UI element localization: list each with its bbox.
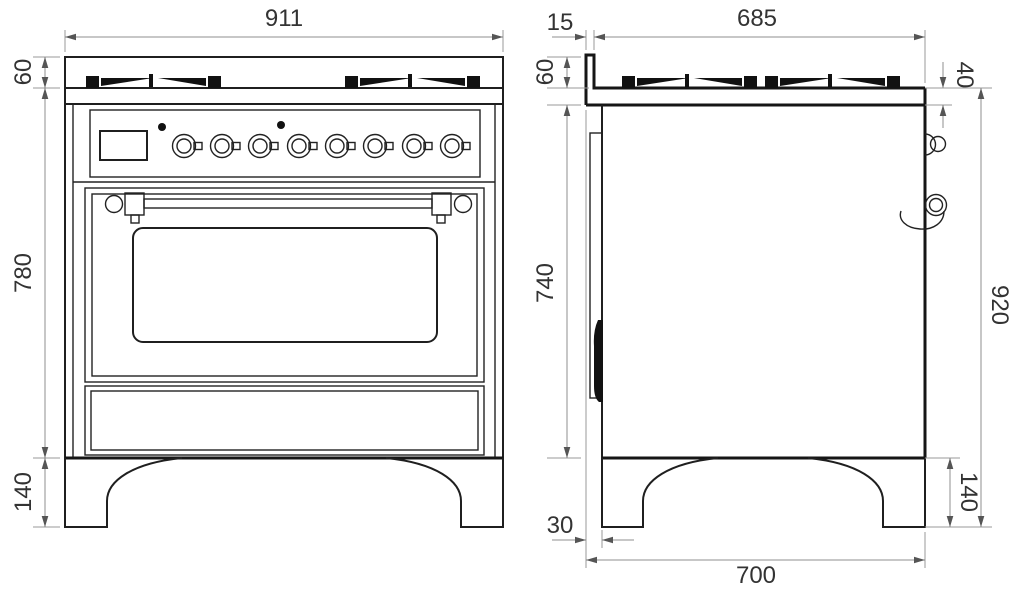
dim-front-body-height: 780 <box>10 88 60 458</box>
dim-label-60: 60 <box>10 59 37 86</box>
control-knob <box>173 135 203 158</box>
leg <box>65 458 182 527</box>
control-knob <box>288 135 318 158</box>
grate-group-right <box>345 74 480 88</box>
dim-side-overall-height: 920 <box>925 88 1013 527</box>
dim-label-740: 740 <box>532 263 559 303</box>
dim-side-leg-height: 140 <box>925 458 982 527</box>
front-dimensions: 911 60 780 140 <box>10 5 503 527</box>
legs-front <box>65 458 503 527</box>
power-cord-loop <box>900 195 946 230</box>
door-window <box>133 228 437 342</box>
cooktop-grates-side <box>622 74 900 88</box>
display-window <box>100 131 147 160</box>
dim-front-leg-height: 140 <box>10 458 60 527</box>
dim-label-780: 780 <box>10 253 37 293</box>
gas-inlet <box>925 134 946 155</box>
control-knob <box>364 135 394 158</box>
stove-body-side <box>586 55 947 458</box>
dim-label-30: 30 <box>547 512 574 539</box>
leg <box>602 458 718 527</box>
side-view: 15 685 60 40 <box>532 5 1013 589</box>
control-knob <box>249 135 279 158</box>
dim-label-140: 140 <box>10 472 37 512</box>
dim-label-140-side: 140 <box>955 472 982 512</box>
dim-label-15: 15 <box>547 9 574 36</box>
legs-side <box>602 458 925 527</box>
grate-group-left <box>86 74 221 88</box>
control-knob <box>441 135 471 158</box>
side-dimensions: 15 685 60 40 <box>532 5 1013 589</box>
dim-label-40: 40 <box>951 62 978 89</box>
control-knob <box>211 135 241 158</box>
dim-front-overall-width: 911 <box>65 5 503 52</box>
dim-side-rim-height: 60 <box>532 57 589 88</box>
door-handle <box>106 193 472 223</box>
control-knob <box>403 135 433 158</box>
dim-side-cooktop-depth: 685 <box>594 5 925 83</box>
control-knob <box>326 135 356 158</box>
leg <box>386 458 503 527</box>
dim-label-700: 700 <box>736 562 776 589</box>
dim-side-edge-thickness: 40 <box>925 62 978 128</box>
grate-group <box>622 74 757 88</box>
dim-side-body-height: 740 <box>532 105 581 458</box>
leg <box>808 458 925 527</box>
dim-side-lip-depth: 15 <box>547 9 594 50</box>
dim-label-60-side: 60 <box>532 59 559 86</box>
dim-label-685: 685 <box>737 5 777 32</box>
indicator-light <box>277 121 285 129</box>
dim-side-overall-depth: 700 <box>586 532 925 589</box>
control-panel <box>90 110 480 177</box>
dim-label-911: 911 <box>265 5 303 32</box>
cooktop-grates-front <box>86 74 480 88</box>
dim-front-rim-height: 60 <box>10 57 60 88</box>
oven-door <box>85 188 484 382</box>
dim-label-920: 920 <box>986 285 1013 325</box>
range-technical-drawing: 911 60 780 140 <box>0 0 1025 590</box>
grate-group <box>765 74 900 88</box>
front-view: 911 60 780 140 <box>10 5 503 527</box>
indicator-light <box>158 123 166 131</box>
technical-drawing-canvas: 911 60 780 140 <box>0 0 1025 590</box>
storage-drawer <box>85 386 484 455</box>
door-edge-detail <box>594 320 603 402</box>
knob-row <box>173 135 471 158</box>
